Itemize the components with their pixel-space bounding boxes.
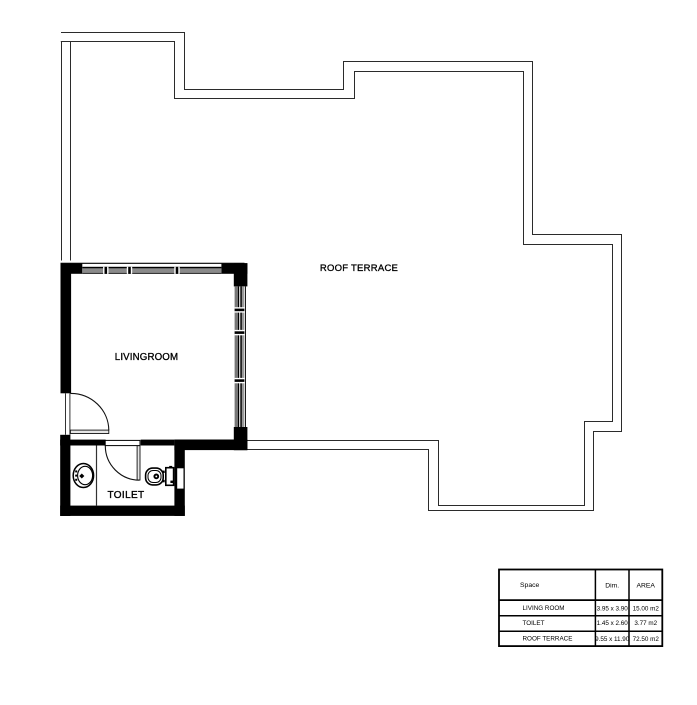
svg-text:3.77 m2: 3.77 m2: [634, 620, 657, 627]
svg-text:9.55 x 11.90: 9.55 x 11.90: [595, 636, 630, 643]
svg-text:1.45 x 2.60: 1.45 x 2.60: [597, 620, 629, 627]
svg-text:TOILET: TOILET: [108, 490, 145, 501]
svg-text:LIVING ROOM: LIVING ROOM: [523, 605, 565, 612]
svg-text:ROOF TERRACE: ROOF TERRACE: [320, 263, 398, 274]
svg-text:3.95 x 3.90: 3.95 x 3.90: [597, 605, 629, 612]
svg-text:Space: Space: [520, 582, 539, 589]
svg-text:TOILET: TOILET: [523, 620, 545, 627]
svg-text:ROOF TERRACE: ROOF TERRACE: [523, 636, 573, 643]
svg-text:LIVINGROOM: LIVINGROOM: [115, 352, 178, 363]
svg-text:Dim.: Dim.: [605, 582, 619, 589]
svg-text:15.00 m2: 15.00 m2: [633, 605, 660, 612]
svg-text:72.50 m2: 72.50 m2: [633, 636, 660, 643]
svg-text:AREA: AREA: [636, 583, 655, 590]
